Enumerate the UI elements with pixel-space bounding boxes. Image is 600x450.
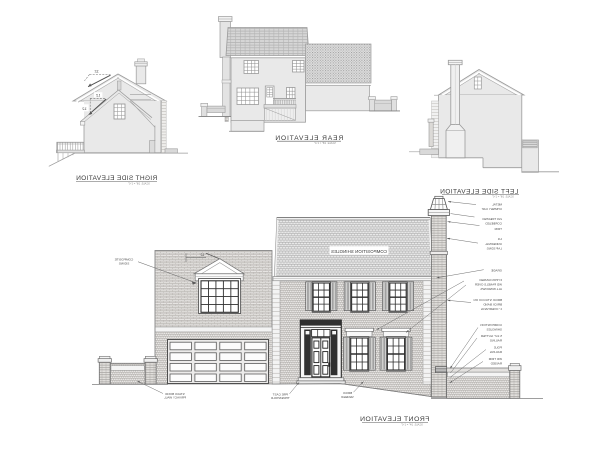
svg-text:COMPOSITION: COMPOSITION — [480, 323, 502, 327]
svg-text:RAILING: RAILING — [489, 350, 502, 354]
svg-text:GRADE: GRADE — [491, 268, 502, 272]
svg-text:SIDING: SIDING — [118, 261, 129, 265]
svg-text:1/2: 1/2 — [497, 237, 502, 241]
svg-text:CORBELED: CORBELED — [484, 222, 502, 226]
svg-text:BRICK STUCCO ON: BRICK STUCCO ON — [474, 298, 502, 302]
svg-text:1" OVERHANG: 1" OVERHANG — [480, 307, 502, 311]
svg-text:FYPON RAISED: FYPON RAISED — [479, 278, 502, 282]
svg-text:5 1/2" GUTTER: 5 1/2" GUTTER — [480, 334, 502, 338]
svg-text:SHINGLES: SHINGLES — [487, 328, 502, 332]
svg-text:PRIVACY WALL: PRIVACY WALL — [164, 396, 186, 400]
svg-text:RAILING: RAILING — [489, 339, 502, 343]
svg-text:12: 12 — [82, 106, 87, 111]
svg-text:LAP SDNG: LAP SDNG — [486, 247, 502, 251]
svg-text:2x6 TREATED: 2x6 TREATED — [482, 217, 502, 221]
svg-text:THRESHOLD: THRESHOLD — [270, 396, 290, 400]
svg-text:ALL WINDOWS: ALL WINDOWS — [480, 287, 502, 291]
svg-text:SCALE: 1/8" = 1'-0": SCALE: 1/8" = 1'-0" — [314, 142, 336, 145]
svg-text:POLE: POLE — [494, 345, 502, 349]
svg-text:VENEER: VENEER — [340, 395, 353, 399]
svg-text:UNDERSILL: UNDERSILL — [485, 242, 502, 246]
svg-text:SCALE: 1/8" = 1'-0": SCALE: 1/8" = 1'-0" — [128, 182, 150, 185]
svg-text:RAISED: RAISED — [490, 362, 502, 366]
svg-text:12: 12 — [95, 93, 100, 98]
svg-text:BRICK BAND: BRICK BAND — [483, 302, 502, 306]
svg-text:METAL: METAL — [492, 202, 502, 206]
svg-text:TRIM: TRIM — [494, 227, 502, 231]
svg-text:SCALE: 1/8" = 1'-0": SCALE: 1/8" = 1'-0" — [492, 196, 514, 199]
svg-text:CHMNEY CAP: CHMNEY CAP — [482, 207, 502, 211]
svg-text:COMPOSITION SHINGLES: COMPOSITION SHINGLES — [331, 249, 387, 254]
svg-text:WD TRIM: WD TRIM — [488, 357, 502, 361]
svg-text:WD PANELS OVER: WD PANELS OVER — [474, 283, 502, 287]
svg-text:12: 12 — [201, 253, 205, 257]
svg-text:SCALE: 1/4" = 1'-0": SCALE: 1/4" = 1'-0" — [401, 423, 423, 426]
svg-text:12: 12 — [94, 69, 99, 74]
